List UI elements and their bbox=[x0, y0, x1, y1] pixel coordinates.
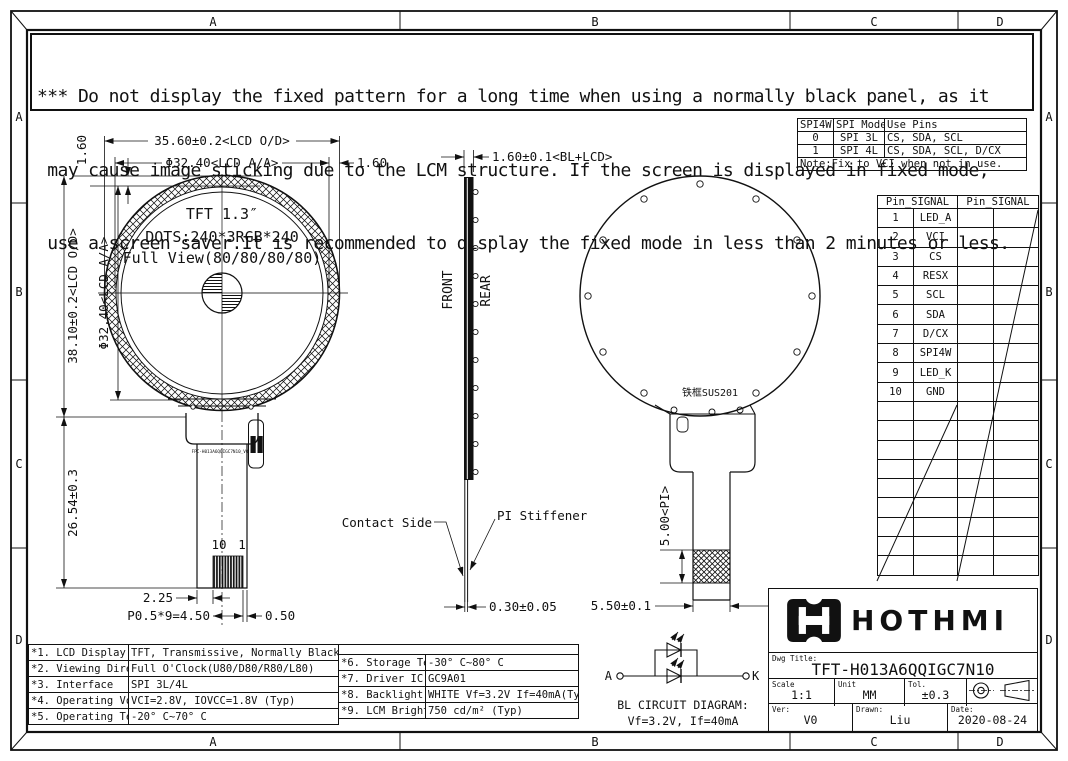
spec-table-left: *1. LCD Display TypeTFT, Transmissive, N… bbox=[28, 644, 339, 725]
spec-1-name: *1. LCD Display Type bbox=[29, 645, 129, 661]
dim-pi: 5.00<PI> bbox=[657, 486, 672, 546]
third-angle-projection-icon bbox=[967, 679, 1035, 702]
pin-table-header-row: Pin_SIGNAL Pin_SIGNAL bbox=[878, 196, 1039, 209]
tol-cell: Tol. ±0.3 bbox=[905, 679, 967, 706]
dim-fpc-length: 26.54±0.3 bbox=[65, 469, 80, 537]
projection-symbol-cell bbox=[967, 679, 1037, 706]
fpc-marking: FPC-H013A6QQIGC7N10_V0 bbox=[192, 449, 249, 455]
spec-8-value: WHITE Vf=3.2V If=40mA(Typ) bbox=[426, 687, 579, 703]
led-symbol-bottom bbox=[667, 658, 684, 683]
zone-col-d-bottom: D bbox=[996, 735, 1003, 749]
engineering-drawing-sheet: A B C D A B C D A B C D A B C D TFT 1.3″… bbox=[0, 0, 1068, 761]
title-block: HOTHMI Dwg Title: TFT-H013A6QQIGC7N10 Sc… bbox=[768, 588, 1038, 732]
pin-table-empty-row bbox=[878, 440, 1039, 459]
scale-cell: Scale 1:1 bbox=[769, 679, 835, 706]
pin-row-6: 6SDA bbox=[878, 305, 1039, 324]
warning-note: *** Do not display the fixed pattern for… bbox=[30, 33, 1034, 111]
spec-3-value: SPI 3L/4L bbox=[129, 677, 339, 693]
dim-pad-right: 0.50 bbox=[265, 608, 295, 623]
bl-circuit-spec: Vf=3.2V, If=40mA bbox=[628, 714, 739, 728]
dwg-title-row: Dwg Title: TFT-H013A6QQIGC7N10 bbox=[769, 653, 1037, 679]
cathode-label: K bbox=[752, 669, 760, 683]
pin-number-first: 10 bbox=[211, 537, 226, 552]
spi-col3-header: Use Pins bbox=[885, 119, 1027, 132]
spi-mode-table: SPI4W SPI Mode Use Pins 0 SPI 3L CS, SDA… bbox=[797, 118, 1027, 171]
spec-4-value: VCI=2.8V, IOVCC=1.8V (Typ) bbox=[129, 693, 339, 709]
bl-circuit-diagram: A K BL CIRCUIT DIAGRAM: Vf=3.2V, If=40mA bbox=[605, 632, 760, 728]
bl-circuit-title: BL CIRCUIT DIAGRAM: bbox=[617, 698, 749, 712]
pin-table-empty-row bbox=[878, 537, 1039, 556]
dim-pitch: P0.5*9=4.50 bbox=[127, 608, 210, 623]
logo-row: HOTHMI bbox=[769, 589, 1037, 653]
version-row: Ver: V0 Drawn: Liu Date: 2020-08-24 bbox=[769, 704, 1037, 731]
drawn-value: Liu bbox=[853, 713, 947, 727]
ver-cell: Ver: V0 bbox=[769, 704, 853, 731]
zone-col-a-top: A bbox=[209, 15, 217, 29]
pin-table-empty-row bbox=[878, 556, 1039, 575]
pin-table-empty-row bbox=[878, 459, 1039, 478]
fpc-side-profile bbox=[465, 480, 468, 602]
dim-fpc-thickness: 0.30±0.05 bbox=[489, 599, 557, 614]
pin-table-empty-row bbox=[878, 421, 1039, 440]
spi-row-0: 0 SPI 3L CS, SDA, SCL bbox=[798, 132, 1027, 145]
date-cell: Date: 2020-08-24 bbox=[948, 704, 1037, 731]
spec-2-value: Full O'Clock(U80/D80/R80/L80) bbox=[129, 661, 339, 677]
spi-header-row: SPI4W SPI Mode Use Pins bbox=[798, 119, 1027, 132]
spec-7-name: *7. Driver IC bbox=[339, 671, 426, 687]
zone-row-a-left: A bbox=[15, 110, 23, 124]
frame-material-label: 铁框SUS201 bbox=[682, 386, 738, 399]
unit-cell: Unit MM bbox=[835, 679, 905, 706]
spec-5-value: -20° C~70° C bbox=[129, 709, 339, 725]
brand-name: HOTHMI bbox=[851, 604, 1009, 637]
zone-row-a-right: A bbox=[1045, 110, 1053, 124]
fpc-contact-fingers bbox=[213, 556, 243, 588]
zone-col-c-bottom: C bbox=[870, 735, 877, 749]
contact-side-label: Contact Side bbox=[342, 515, 432, 530]
spi-row-1: 1 SPI 4L CS, SDA, SCL, D/CX bbox=[798, 145, 1027, 158]
spec-9-value: 750 cd/m² (Typ) bbox=[426, 703, 579, 719]
pin-table-empty-row bbox=[878, 401, 1039, 420]
dim-pad-left: 2.25 bbox=[143, 590, 173, 605]
unit-value: MM bbox=[835, 688, 904, 702]
spec-1-value: TFT, Transmissive, Normally Black bbox=[129, 645, 339, 661]
zone-row-b-right: B bbox=[1045, 285, 1052, 299]
zone-col-c-top: C bbox=[870, 15, 877, 29]
zone-col-d-top: D bbox=[996, 15, 1003, 29]
pin-row-1: 1LED_A bbox=[878, 209, 1039, 228]
anode-label: A bbox=[605, 669, 613, 683]
zone-row-c-left: C bbox=[15, 457, 22, 471]
pin-row-3: 3CS bbox=[878, 247, 1039, 266]
pin-header-left: Pin_SIGNAL bbox=[878, 196, 958, 209]
pi-stiffener-label: PI Stiffener bbox=[497, 508, 588, 523]
spec-7-value: GC9A01 bbox=[426, 671, 579, 687]
spec-6-name: *6. Storage Temp bbox=[339, 655, 426, 671]
pin-number-last: 1 bbox=[238, 537, 246, 552]
pin-row-5: 5SCL bbox=[878, 286, 1039, 305]
spec-3-name: *3. Interface bbox=[29, 677, 129, 693]
zone-row-d-right: D bbox=[1045, 633, 1052, 647]
pin-row-2: 2VCI bbox=[878, 228, 1039, 247]
spi-note-row: Note:Fix to VCI when not in use. bbox=[798, 158, 1027, 171]
ver-value: V0 bbox=[769, 713, 852, 727]
pin-row-10: 10GND bbox=[878, 382, 1039, 401]
dim-tail-width: 5.50±0.1 bbox=[591, 598, 651, 613]
anode-terminal bbox=[617, 673, 623, 679]
pin-row-7: 7D/CX bbox=[878, 324, 1039, 343]
fpc-component-2 bbox=[258, 436, 263, 453]
zone-row-d-left: D bbox=[15, 633, 22, 647]
spec-4-name: *4. Operating Voltage bbox=[29, 693, 129, 709]
zone-row-c-right: C bbox=[1045, 457, 1052, 471]
warning-line-1: *** Do not display the fixed pattern for… bbox=[37, 85, 1032, 110]
zone-col-b-bottom: B bbox=[591, 735, 598, 749]
spi-note: Note:Fix to VCI when not in use. bbox=[798, 158, 1027, 171]
spec-table-right: *6. Storage Temp-30° C~80° C *7. Driver … bbox=[338, 644, 579, 719]
scale-row: Scale 1:1 Unit MM Tol. ±0.3 bbox=[769, 679, 1037, 704]
pin-table-empty-row bbox=[878, 517, 1039, 536]
spec-5-name: *5. Operating Temp bbox=[29, 709, 129, 725]
tol-value: ±0.3 bbox=[905, 688, 966, 702]
spec-6-value: -30° C~80° C bbox=[426, 655, 579, 671]
date-value: 2020-08-24 bbox=[948, 713, 1037, 727]
pin-row-4: 4RESX bbox=[878, 266, 1039, 285]
pin-table-empty-row bbox=[878, 479, 1039, 498]
spec-2-name: *2. Viewing Diretion bbox=[29, 661, 129, 677]
rear-shoulder-outline bbox=[670, 414, 755, 472]
spec-8-name: *8. Backlight bbox=[339, 687, 426, 703]
spi-col1-header: SPI4W bbox=[798, 119, 834, 132]
pin-table-empty-row bbox=[878, 498, 1039, 517]
zone-col-a-bottom: A bbox=[209, 735, 217, 749]
fpc-component-1 bbox=[251, 436, 256, 453]
spec-right-empty-row bbox=[339, 645, 579, 655]
zone-row-b-left: B bbox=[15, 285, 22, 299]
zone-col-b-top: B bbox=[591, 15, 598, 29]
scale-value: 1:1 bbox=[769, 688, 834, 702]
led-symbol-top bbox=[667, 632, 684, 657]
spec-9-name: *9. LCM Brightness bbox=[339, 703, 426, 719]
dwg-title-value: TFT-H013A6QQIGC7N10 bbox=[769, 660, 1037, 679]
drawn-cell: Drawn: Liu bbox=[853, 704, 948, 731]
spi-col2-header: SPI Mode bbox=[834, 119, 885, 132]
cathode-terminal bbox=[743, 673, 749, 679]
hothmi-logo-icon bbox=[787, 599, 841, 642]
pin-row-8: 8SPI4W bbox=[878, 344, 1039, 363]
pin-signal-table: Pin_SIGNAL Pin_SIGNAL 1LED_A 2VCI 3CS 4R… bbox=[877, 195, 1039, 576]
pin-row-9: 9LED_K bbox=[878, 363, 1039, 382]
pin-header-right: Pin_SIGNAL bbox=[958, 196, 1039, 209]
pi-stiffener-hatch bbox=[693, 550, 730, 583]
